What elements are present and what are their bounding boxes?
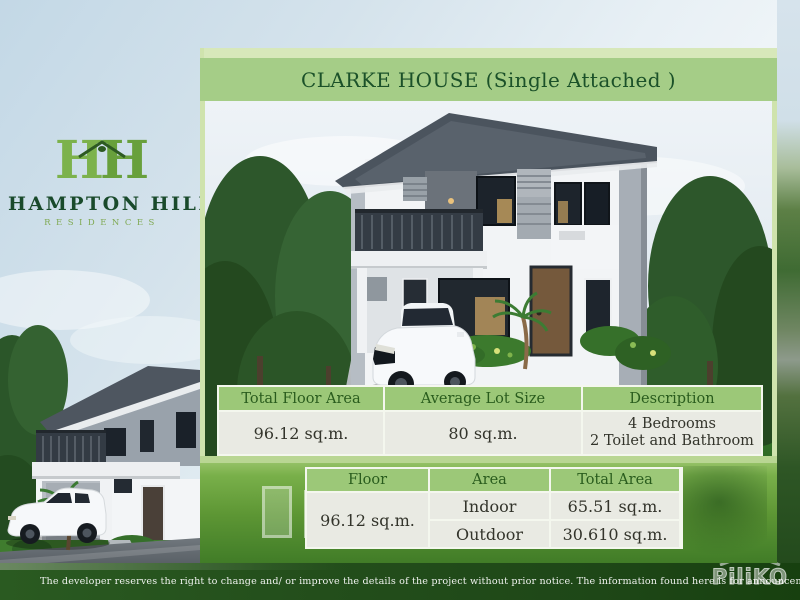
spec-header-average-lot-size: Average Lot Size [385,387,581,410]
total-floor-area-value: 96.12 sq.m. [219,412,383,454]
floor-indoor-area: 65.51 sq.m. [551,493,679,519]
floor-header-area: Area [430,469,549,491]
specs-table: Total Floor Area Average Lot Size Descri… [217,385,763,456]
brand-logo: HH HAMPTON HILL RESIDENCES [8,133,196,228]
left-house-illustration [0,0,200,600]
spec-header-description: Description [583,387,761,410]
logo-roof-icon [76,137,128,159]
balcony [351,209,487,269]
floor-outdoor-label: Outdoor [430,521,549,547]
floor-header-total-area: Total Area [551,469,679,491]
page-title: CLARKE HOUSE (Single Attached ) [200,58,777,101]
floor-indoor-label: Indoor [430,493,549,519]
flyer-canvas: The developer reserves the right to chan… [0,0,800,600]
background-scene-right [777,0,800,600]
watermark-text: PiliKO [712,565,788,589]
footer-disclaimer: The developer reserves the right to chan… [0,576,800,587]
floor-area-table: Floor Area Total Area Indoor 65.51 sq.m.… [305,467,683,549]
brand-name: HAMPTON HILL [8,193,196,215]
description-line-1: 4 Bedrooms [628,416,716,433]
total-area-value: 96.12 sq.m. [307,493,428,547]
tinted-window-shape [262,486,292,538]
average-lot-size-value: 80 sq.m. [385,412,581,454]
main-panel: CLARKE HOUSE (Single Attached ) [200,48,777,563]
floor-header-floor: Floor [307,469,428,491]
floor-outdoor-area: 30.610 sq.m. [551,521,679,547]
description-value: 4 Bedrooms 2 Toilet and Bathroom [583,412,761,454]
hh-monogram-icon: HH [8,133,196,189]
spec-header-total-floor-area: Total Floor Area [219,387,383,410]
background-scene-left [0,0,200,600]
bottom-band: The developer reserves the right to chan… [0,563,800,600]
brand-subtitle: RESIDENCES [8,218,196,228]
panel-title-strip [204,48,777,58]
description-line-2: 2 Toilet and Bathroom [590,433,754,450]
